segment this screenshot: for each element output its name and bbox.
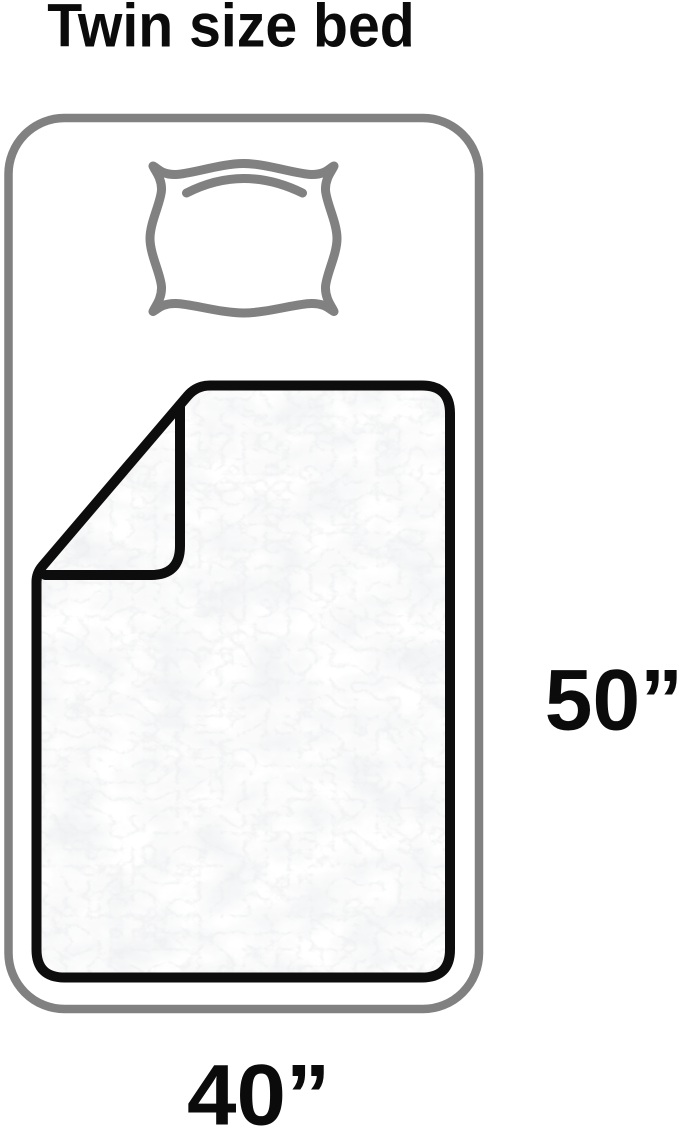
svg-text:50”: 50” — [545, 652, 679, 748]
svg-text:Twin size bed: Twin size bed — [47, 0, 415, 60]
svg-text:40”: 40” — [187, 1047, 330, 1128]
